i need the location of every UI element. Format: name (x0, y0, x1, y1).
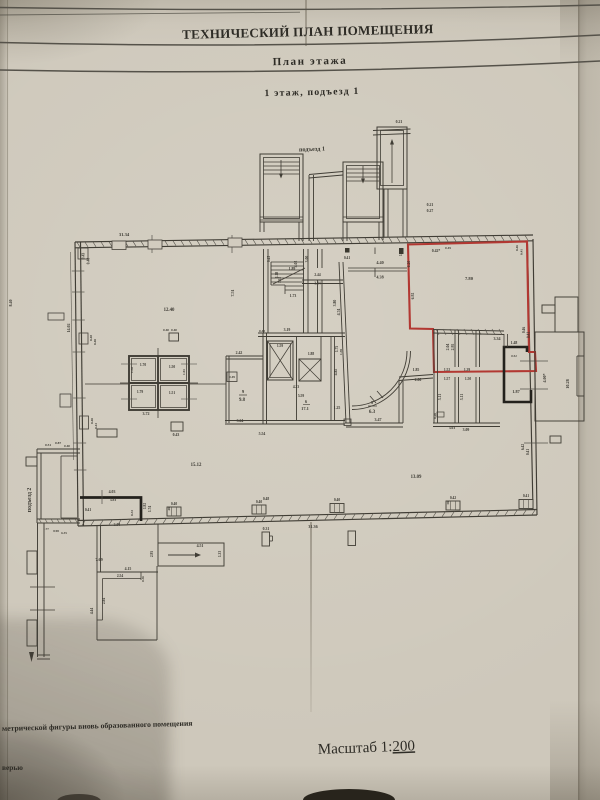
svg-text:1.02: 1.02 (399, 250, 403, 256)
svg-text:1.70: 1.70 (140, 363, 146, 367)
svg-text:0.40: 0.40 (87, 258, 91, 265)
svg-text:7.80: 7.80 (465, 276, 474, 281)
svg-text:6.92: 6.92 (411, 293, 415, 300)
svg-text:6: 6 (305, 399, 307, 404)
svg-text:0.31: 0.31 (263, 527, 270, 531)
svg-text:14.02: 14.02 (66, 324, 71, 333)
svg-text:30: 30 (446, 501, 450, 505)
svg-text:1.57: 1.57 (444, 377, 450, 381)
svg-text:1.73: 1.73 (290, 294, 297, 298)
svg-text:1.50: 1.50 (465, 377, 471, 381)
svg-text:2.44: 2.44 (314, 273, 320, 277)
svg-text:3.19: 3.19 (284, 328, 291, 332)
svg-text:3.72: 3.72 (143, 411, 150, 416)
svg-text:3.34: 3.34 (494, 336, 501, 341)
svg-text:4.85: 4.85 (334, 369, 338, 376)
svg-text:5.54: 5.54 (259, 432, 266, 436)
svg-text:1.91: 1.91 (182, 369, 186, 375)
svg-text:1.33: 1.33 (218, 551, 222, 557)
svg-text:3.93: 3.93 (110, 498, 116, 502)
svg-text:1.79: 1.79 (137, 390, 143, 394)
svg-text:6.3: 6.3 (369, 410, 376, 415)
svg-text:1.50: 1.50 (169, 365, 175, 369)
svg-text:0.40: 0.40 (334, 498, 340, 502)
svg-text:0.43: 0.43 (94, 423, 98, 429)
svg-text:1.48: 1.48 (511, 341, 518, 345)
svg-text:1.85: 1.85 (413, 368, 420, 372)
svg-text:6.42: 6.42 (521, 444, 525, 450)
svg-text:0.40: 0.40 (163, 328, 169, 332)
svg-text:1.92: 1.92 (143, 503, 147, 509)
svg-text:0.41: 0.41 (520, 249, 524, 255)
svg-text:10.28: 10.28 (565, 379, 570, 388)
svg-text:2.95: 2.95 (150, 551, 154, 557)
svg-text:2.95: 2.95 (451, 344, 455, 351)
svg-text:3.11: 3.11 (438, 394, 442, 401)
svg-text:4.03: 4.03 (109, 490, 116, 494)
svg-text:верью: верью (2, 763, 23, 772)
svg-text:ТЕХНИЧЕСКИЙ ПЛАН ПОМЕЩЕНИЯ: ТЕХНИЧЕСКИЙ ПЛАН ПОМЕЩЕНИЯ (182, 21, 434, 42)
svg-text:3.09: 3.09 (463, 428, 470, 432)
svg-text:1.58: 1.58 (130, 367, 134, 373)
svg-text:1.88: 1.88 (308, 352, 314, 356)
svg-text:4.38: 4.38 (376, 275, 383, 280)
svg-text:подъезд 2: подъезд 2 (27, 488, 33, 513)
svg-text:9.8: 9.8 (239, 398, 246, 403)
svg-text:2.42: 2.42 (236, 351, 243, 355)
svg-text:17.1: 17.1 (301, 406, 309, 411)
svg-text:0.87: 0.87 (55, 441, 61, 445)
svg-text:0.42*: 0.42* (432, 249, 441, 253)
svg-text:8.40: 8.40 (8, 300, 13, 307)
svg-text:4.51: 4.51 (197, 544, 204, 548)
svg-text:1.51: 1.51 (169, 391, 175, 395)
svg-text:0.46: 0.46 (522, 327, 526, 333)
svg-text:4.23: 4.23 (293, 385, 299, 389)
svg-text:0.27: 0.27 (427, 209, 434, 213)
svg-text:0.49: 0.49 (229, 375, 235, 379)
svg-text:3.44: 3.44 (314, 282, 320, 286)
svg-text:0.46: 0.46 (515, 245, 519, 251)
svg-text:12.40: 12.40 (164, 308, 175, 313)
svg-text:0.40: 0.40 (64, 444, 70, 448)
svg-text:31.36: 31.36 (308, 524, 317, 529)
svg-text:1 этаж, подъезд 1: 1 этаж, подъезд 1 (264, 86, 359, 99)
svg-text:6.20: 6.20 (407, 261, 411, 268)
svg-text:0.41: 0.41 (526, 449, 530, 455)
svg-text:0.43: 0.43 (173, 433, 180, 437)
svg-text:2.06: 2.06 (415, 378, 422, 382)
svg-text:подъезд 1: подъезд 1 (299, 146, 325, 154)
svg-text:2.84: 2.84 (102, 598, 106, 604)
svg-text:0.52: 0.52 (511, 354, 517, 358)
svg-text:Масштаб 1:200: Масштаб 1:200 (318, 738, 416, 758)
svg-text:8.98: 8.98 (53, 529, 59, 533)
svg-text:3.03: 3.03 (449, 426, 455, 430)
svg-text:3.80: 3.80 (333, 300, 337, 307)
svg-text:0.20: 0.20 (433, 413, 437, 419)
svg-text:0.21: 0.21 (396, 120, 403, 124)
svg-text:4.74: 4.74 (337, 309, 341, 316)
svg-text:0.45: 0.45 (445, 246, 451, 250)
svg-text:2.54: 2.54 (117, 574, 123, 578)
svg-text:0.41: 0.41 (85, 508, 91, 512)
svg-text:4.02: 4.02 (294, 261, 298, 268)
svg-text:2.04: 2.04 (446, 344, 450, 351)
svg-text:3.11: 3.11 (460, 394, 464, 401)
svg-text:13.09: 13.09 (411, 475, 422, 480)
svg-text:5.59: 5.59 (298, 394, 304, 398)
svg-text:0.21: 0.21 (427, 203, 434, 207)
svg-text:0.51: 0.51 (45, 443, 51, 447)
svg-text:3.04: 3.04 (114, 523, 121, 527)
svg-text:0.40: 0.40 (171, 502, 177, 506)
svg-text:4.15: 4.15 (125, 567, 132, 571)
svg-text:0.40: 0.40 (171, 328, 177, 332)
svg-text:0.40: 0.40 (93, 339, 97, 345)
svg-text:4.40: 4.40 (376, 260, 383, 265)
svg-text:0.36: 0.36 (141, 576, 145, 582)
svg-text:1.52: 1.52 (444, 368, 450, 372)
svg-text:4.44: 4.44 (90, 608, 94, 614)
svg-text:3.47: 3.47 (375, 417, 382, 422)
svg-text:1.29: 1.29 (464, 368, 470, 372)
svg-text:15.12: 15.12 (191, 463, 202, 468)
svg-text:0.41: 0.41 (344, 256, 350, 260)
svg-text:0.40: 0.40 (256, 500, 262, 504)
svg-text:метрической фигуры вновь образ: метрической фигуры вновь образованного п… (2, 719, 193, 733)
svg-text:1.52: 1.52 (278, 277, 282, 283)
svg-text:4.00*: 4.00* (542, 374, 547, 383)
svg-text:0.43: 0.43 (82, 253, 86, 260)
svg-text:План этажа: План этажа (273, 55, 348, 69)
svg-text:40: 40 (167, 507, 171, 511)
svg-text:0.48: 0.48 (263, 497, 269, 501)
svg-text:0.33: 0.33 (130, 510, 134, 516)
svg-text:6.35: 6.35 (61, 531, 67, 535)
svg-text:1.74: 1.74 (148, 506, 152, 512)
svg-text:9: 9 (242, 389, 245, 394)
svg-text:3.00: 3.00 (305, 256, 309, 263)
svg-text:31.34: 31.34 (119, 232, 130, 237)
svg-text:0.42: 0.42 (450, 496, 456, 500)
svg-text:3.24: 3.24 (237, 419, 244, 423)
svg-text:1.25: 1.25 (334, 406, 341, 410)
svg-text:7.69: 7.69 (95, 557, 102, 562)
svg-text:1.59: 1.59 (339, 349, 343, 355)
svg-text:0.43: 0.43 (259, 329, 265, 333)
svg-text:1.87: 1.87 (512, 389, 519, 394)
svg-text:0.41: 0.41 (527, 332, 531, 338)
svg-text:0.41: 0.41 (523, 494, 529, 498)
svg-text:7.51: 7.51 (230, 289, 235, 296)
svg-text:1.59: 1.59 (277, 344, 283, 348)
svg-text:5: 5 (371, 400, 374, 405)
